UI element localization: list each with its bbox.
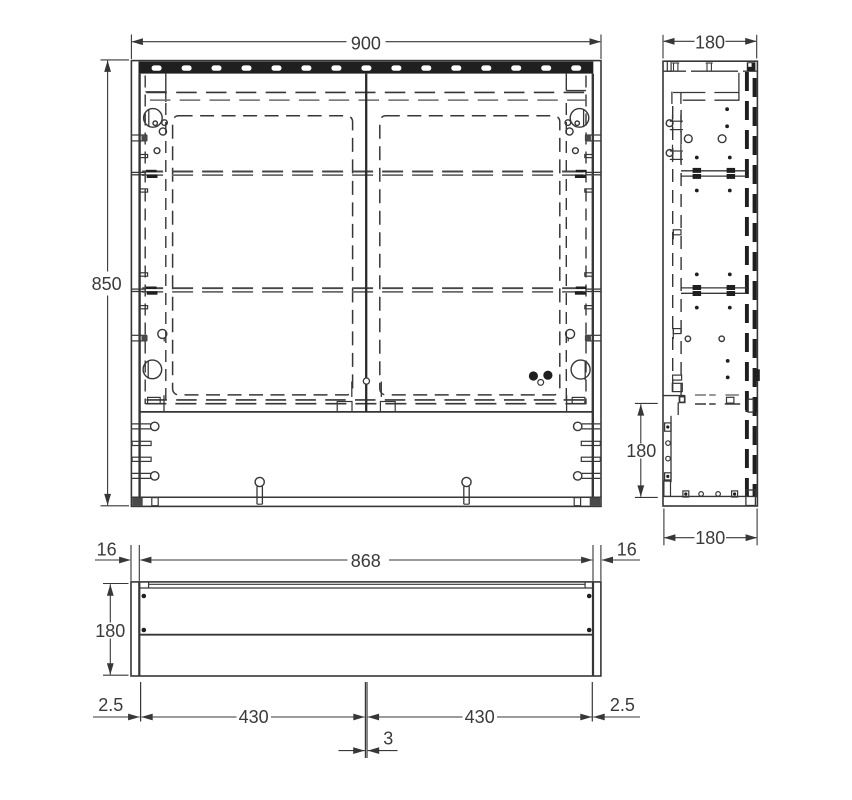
svg-text:430: 430 bbox=[465, 707, 495, 727]
svg-text:16: 16 bbox=[97, 540, 117, 560]
svg-text:2.5: 2.5 bbox=[610, 695, 635, 715]
svg-text:900: 900 bbox=[351, 34, 381, 54]
svg-text:3: 3 bbox=[383, 729, 393, 749]
svg-text:430: 430 bbox=[239, 707, 269, 727]
svg-text:868: 868 bbox=[351, 551, 381, 571]
svg-text:180: 180 bbox=[626, 441, 656, 461]
svg-text:180: 180 bbox=[95, 621, 125, 641]
svg-text:180: 180 bbox=[695, 528, 725, 548]
svg-text:2.5: 2.5 bbox=[98, 695, 123, 715]
svg-text:16: 16 bbox=[617, 540, 637, 560]
svg-text:850: 850 bbox=[92, 274, 122, 294]
svg-text:180: 180 bbox=[695, 32, 725, 52]
